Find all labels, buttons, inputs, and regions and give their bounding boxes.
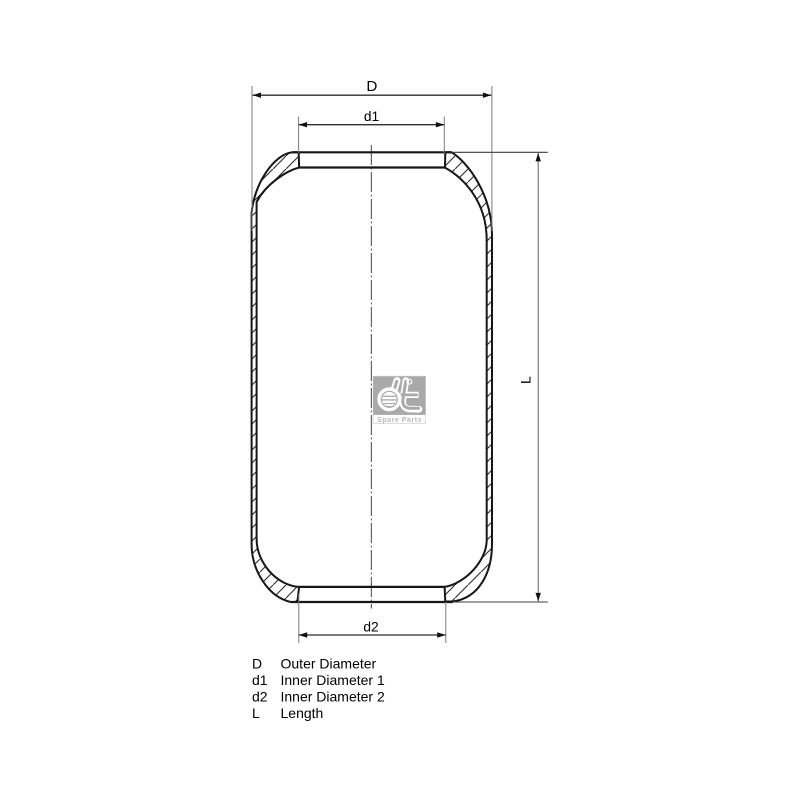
svg-text:Inner Diameter 2: Inner Diameter 2 <box>281 689 385 705</box>
svg-text:D: D <box>366 78 377 95</box>
svg-text:D: D <box>252 656 262 672</box>
svg-text:d1: d1 <box>364 109 379 124</box>
svg-text:d2: d2 <box>252 689 268 705</box>
svg-text:L: L <box>519 376 535 384</box>
svg-text:Length: Length <box>281 705 324 721</box>
svg-text:L: L <box>252 705 260 721</box>
svg-text:Outer Diameter: Outer Diameter <box>281 656 377 672</box>
svg-text:d1: d1 <box>252 672 268 688</box>
svg-text:Spare Parts: Spare Parts <box>377 417 422 424</box>
svg-text:Inner Diameter 1: Inner Diameter 1 <box>281 672 385 688</box>
svg-text:d2: d2 <box>363 619 378 634</box>
